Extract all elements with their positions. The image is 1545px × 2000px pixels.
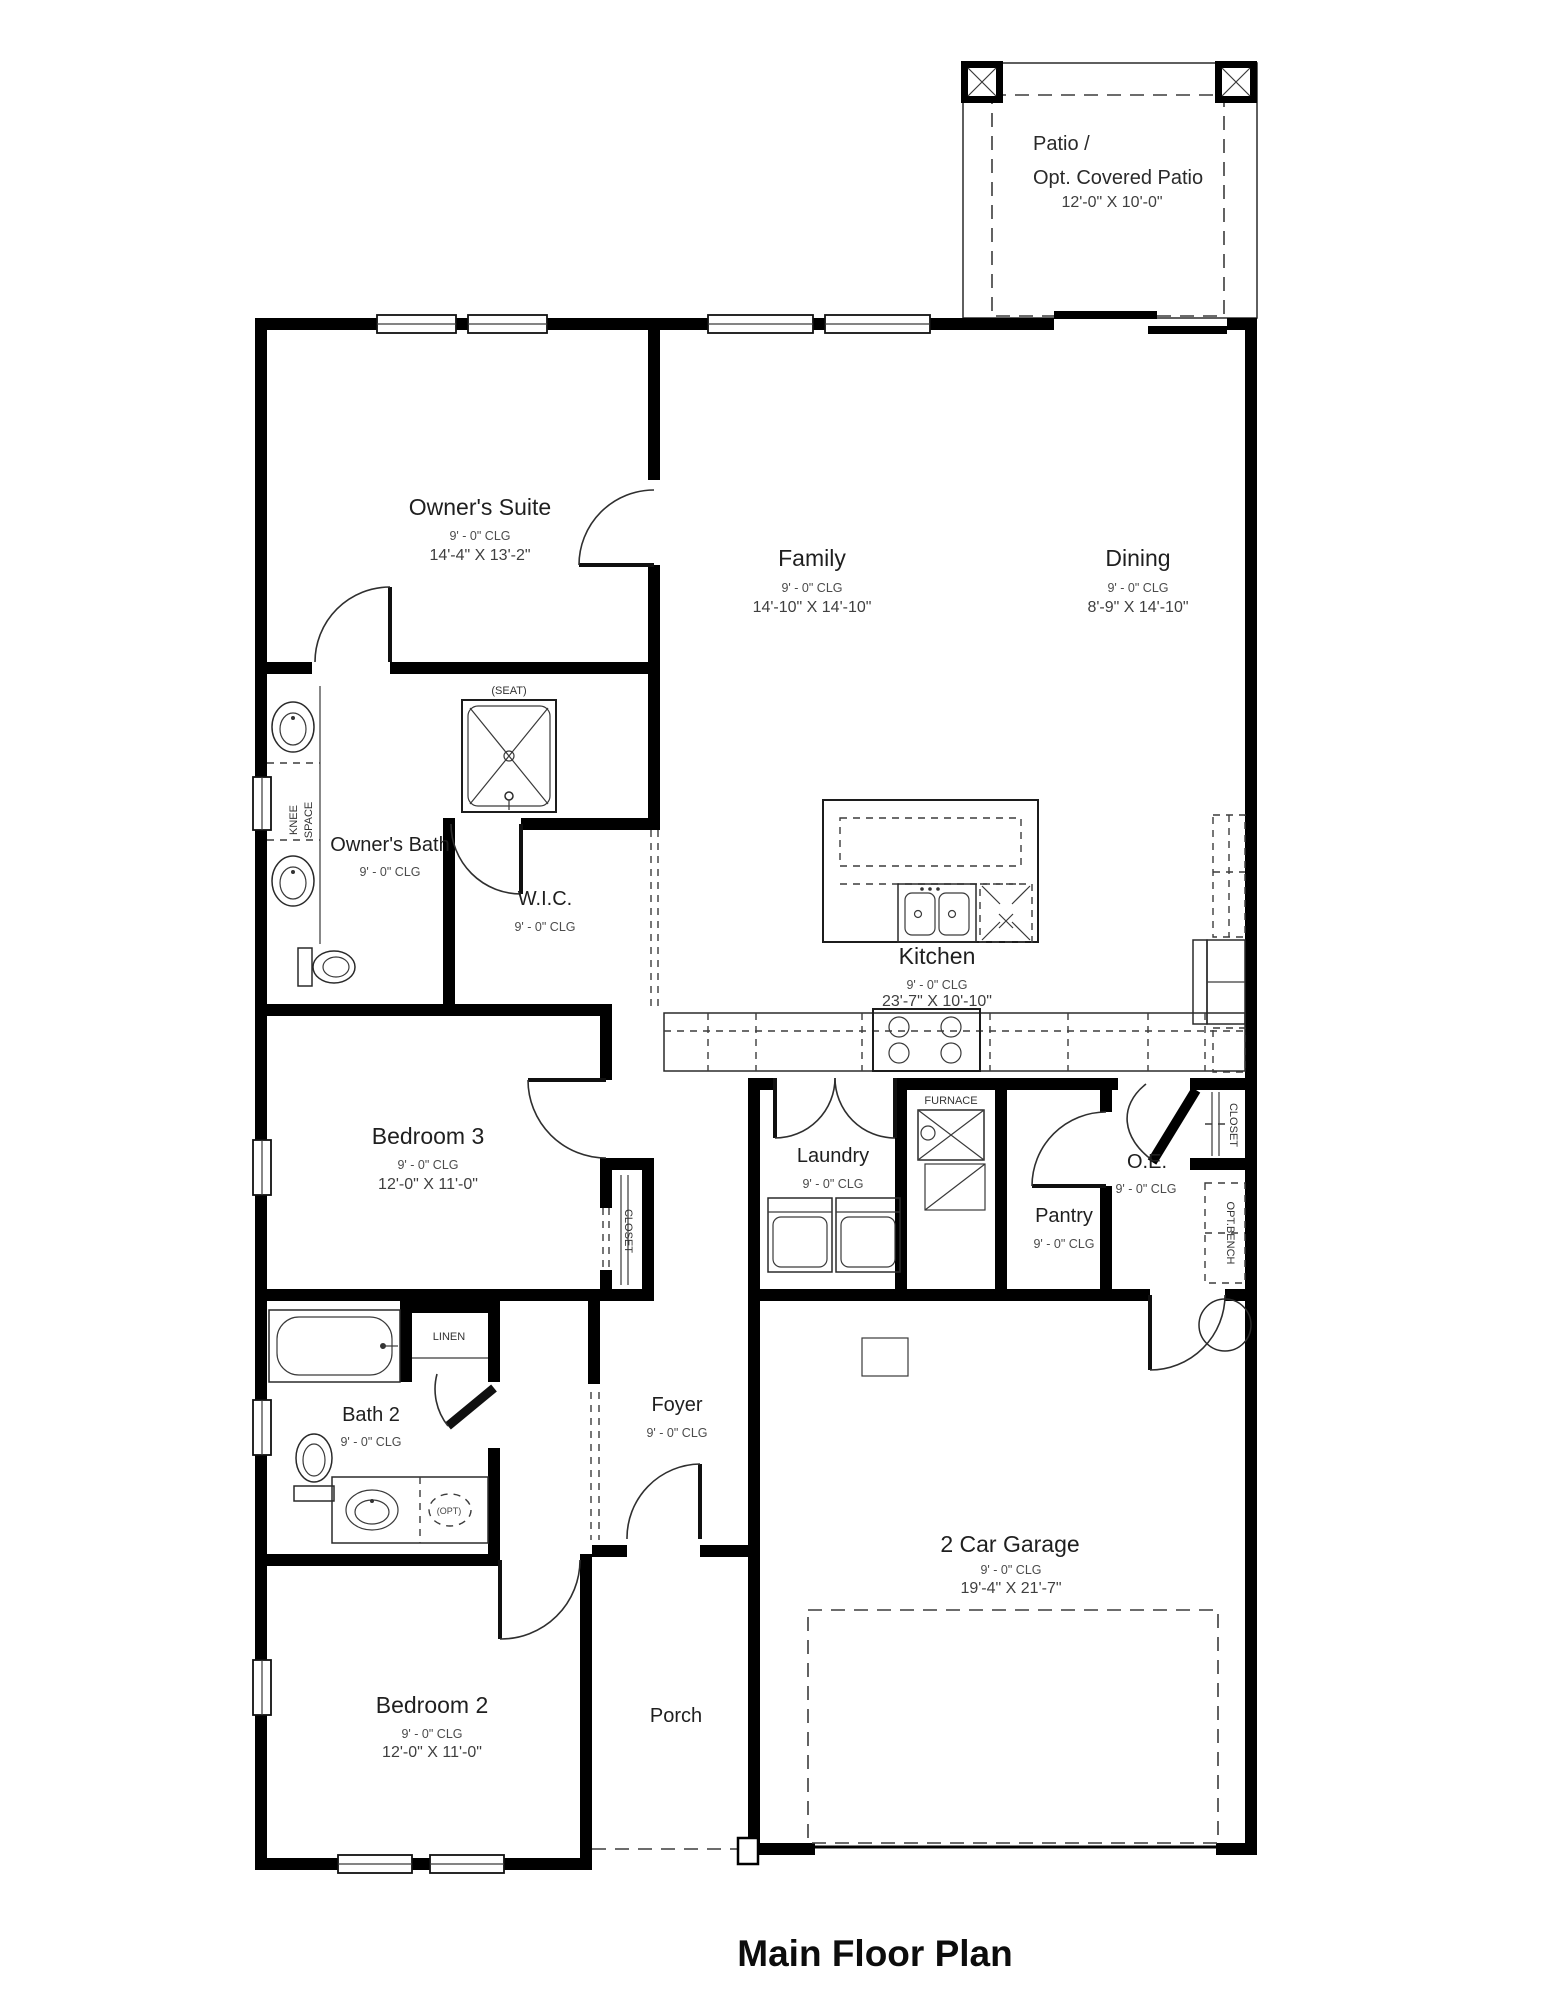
- furnace: [918, 1110, 985, 1210]
- opt-sink-label: (OPT): [437, 1506, 462, 1516]
- kitchen-label: Kitchen: [899, 943, 976, 969]
- kitchen-dims: 23'-7" X 10'-10": [882, 993, 992, 1010]
- vanity: [332, 1477, 488, 1543]
- sliding-door-rail: [1054, 311, 1157, 319]
- wic-label: W.I.C.: [518, 888, 572, 910]
- knee-space-label-1: KNEE: [288, 805, 300, 835]
- garage-dims: 19'-4" X 21'-7": [960, 1580, 1061, 1597]
- dishwasher: [980, 884, 1032, 942]
- window: [430, 1855, 504, 1873]
- oe-label: O.E.: [1127, 1151, 1167, 1173]
- patio-structure: [961, 61, 1257, 318]
- pantry-label: Pantry: [1035, 1205, 1093, 1227]
- window: [825, 315, 930, 333]
- bath2-label: Bath 2: [342, 1404, 400, 1426]
- linen-label: LINEN: [433, 1331, 465, 1343]
- family-label: Family: [778, 545, 846, 571]
- kitchen-island: [823, 800, 1038, 942]
- window: [253, 1660, 271, 1715]
- garage-clg: 9' - 0" CLG: [980, 1563, 1041, 1577]
- window: [253, 1400, 271, 1455]
- oe-closet-rod: [1205, 1092, 1226, 1156]
- bedroom3-dims: 12'-0" X 11'-0": [378, 1176, 478, 1193]
- window: [338, 1855, 412, 1873]
- floor-plan-canvas: Patio / Opt. Covered Patio 12'-0" X 10'-…: [0, 0, 1545, 2000]
- patio-post-left: [961, 61, 1003, 103]
- bedroom2-label: Bedroom 2: [376, 1692, 489, 1718]
- oe-clg: 9' - 0" CLG: [1115, 1182, 1176, 1196]
- pantry-door: [1032, 1112, 1106, 1186]
- owners-bath-label: Owner's Bath: [330, 834, 449, 856]
- window: [253, 777, 271, 830]
- bedroom3-clg: 9' - 0" CLG: [397, 1158, 458, 1172]
- oe-closet-door: [1127, 1084, 1152, 1160]
- bedroom3-closet-label: CLOSET: [622, 1209, 634, 1253]
- oe-garage-door: [1150, 1295, 1225, 1370]
- patio-label-line1: Patio /: [1033, 133, 1090, 155]
- patio-label-line2: Opt. Covered Patio: [1033, 167, 1203, 189]
- bath2-door: [435, 1374, 494, 1426]
- kitchen-counter: [664, 1009, 1245, 1071]
- owners-suite-clg: 9' - 0" CLG: [449, 529, 510, 543]
- family-dims: 14'-10" X 14'-10": [753, 599, 872, 616]
- bath-sink: [272, 856, 314, 906]
- window: [708, 315, 813, 333]
- window: [468, 315, 547, 333]
- kitchen-fixtures: [664, 800, 1245, 1072]
- suite-bath-door: [315, 587, 390, 662]
- dining-dims: 8'-9" X 14'-10": [1087, 599, 1188, 616]
- bath-sink: [272, 702, 314, 752]
- furnace-label: FURNACE: [924, 1095, 977, 1107]
- shower: [462, 700, 556, 812]
- fridge: [1193, 940, 1245, 1024]
- window: [377, 315, 456, 333]
- front-door: [627, 1464, 700, 1539]
- porch-post: [738, 1838, 758, 1864]
- knee-space-label-2: SPACE: [303, 802, 315, 838]
- laundry-clg: 9' - 0" CLG: [802, 1177, 863, 1191]
- bedroom2-dims: 12'-0" X 11'-0": [382, 1744, 482, 1761]
- patio-dims: 12'-0" X 10'-0": [1061, 194, 1162, 211]
- wall-cabinets: [1213, 815, 1245, 1072]
- floor-plan-page: Patio / Opt. Covered Patio 12'-0" X 10'-…: [0, 0, 1545, 2000]
- porch-label: Porch: [650, 1705, 702, 1727]
- bedroom3-label: Bedroom 3: [372, 1123, 485, 1149]
- range: [873, 1009, 980, 1071]
- bedroom3-door: [528, 1080, 606, 1158]
- wic-door: [451, 824, 521, 894]
- owners-suite-label: Owner's Suite: [409, 494, 551, 520]
- owners-bath-clg: 9' - 0" CLG: [359, 865, 420, 879]
- kitchen-clg: 9' - 0" CLG: [906, 978, 967, 992]
- toilet: [298, 948, 355, 986]
- room-labels: Patio / Opt. Covered Patio 12'-0" X 10'-…: [288, 133, 1239, 1974]
- laundry-double-doors: [775, 1078, 895, 1138]
- bedroom2-door: [500, 1560, 580, 1639]
- sliding-door-rail: [1148, 326, 1227, 334]
- owners-suite-dims: 14'-4" X 13'-2": [429, 547, 530, 564]
- washer: [768, 1198, 832, 1272]
- owners-suite-door: [579, 490, 654, 565]
- bath2-clg: 9' - 0" CLG: [340, 1435, 401, 1449]
- tub: [269, 1310, 400, 1382]
- plan-title: Main Floor Plan: [737, 1933, 1012, 1974]
- garage-label: 2 Car Garage: [940, 1531, 1079, 1557]
- water-heater: [1199, 1299, 1251, 1351]
- dining-clg: 9' - 0" CLG: [1107, 581, 1168, 595]
- oe-closet-label: CLOSET: [1227, 1103, 1239, 1147]
- foyer-label: Foyer: [651, 1394, 702, 1416]
- pantry-clg: 9' - 0" CLG: [1033, 1237, 1094, 1251]
- window: [253, 1140, 271, 1195]
- wic-clg: 9' - 0" CLG: [514, 920, 575, 934]
- opt-bench-label: OPT.BENCH: [1224, 1202, 1236, 1265]
- patio-post-right: [1215, 61, 1257, 103]
- porch-extras: [592, 1838, 758, 1864]
- island-sink: [898, 884, 976, 942]
- bedroom2-clg: 9' - 0" CLG: [401, 1727, 462, 1741]
- family-clg: 9' - 0" CLG: [781, 581, 842, 595]
- seat-label: (SEAT): [491, 685, 526, 697]
- foyer-clg: 9' - 0" CLG: [646, 1426, 707, 1440]
- dining-label: Dining: [1105, 545, 1170, 571]
- laundry-label: Laundry: [797, 1145, 869, 1167]
- dryer: [836, 1198, 900, 1272]
- toilet: [294, 1434, 334, 1501]
